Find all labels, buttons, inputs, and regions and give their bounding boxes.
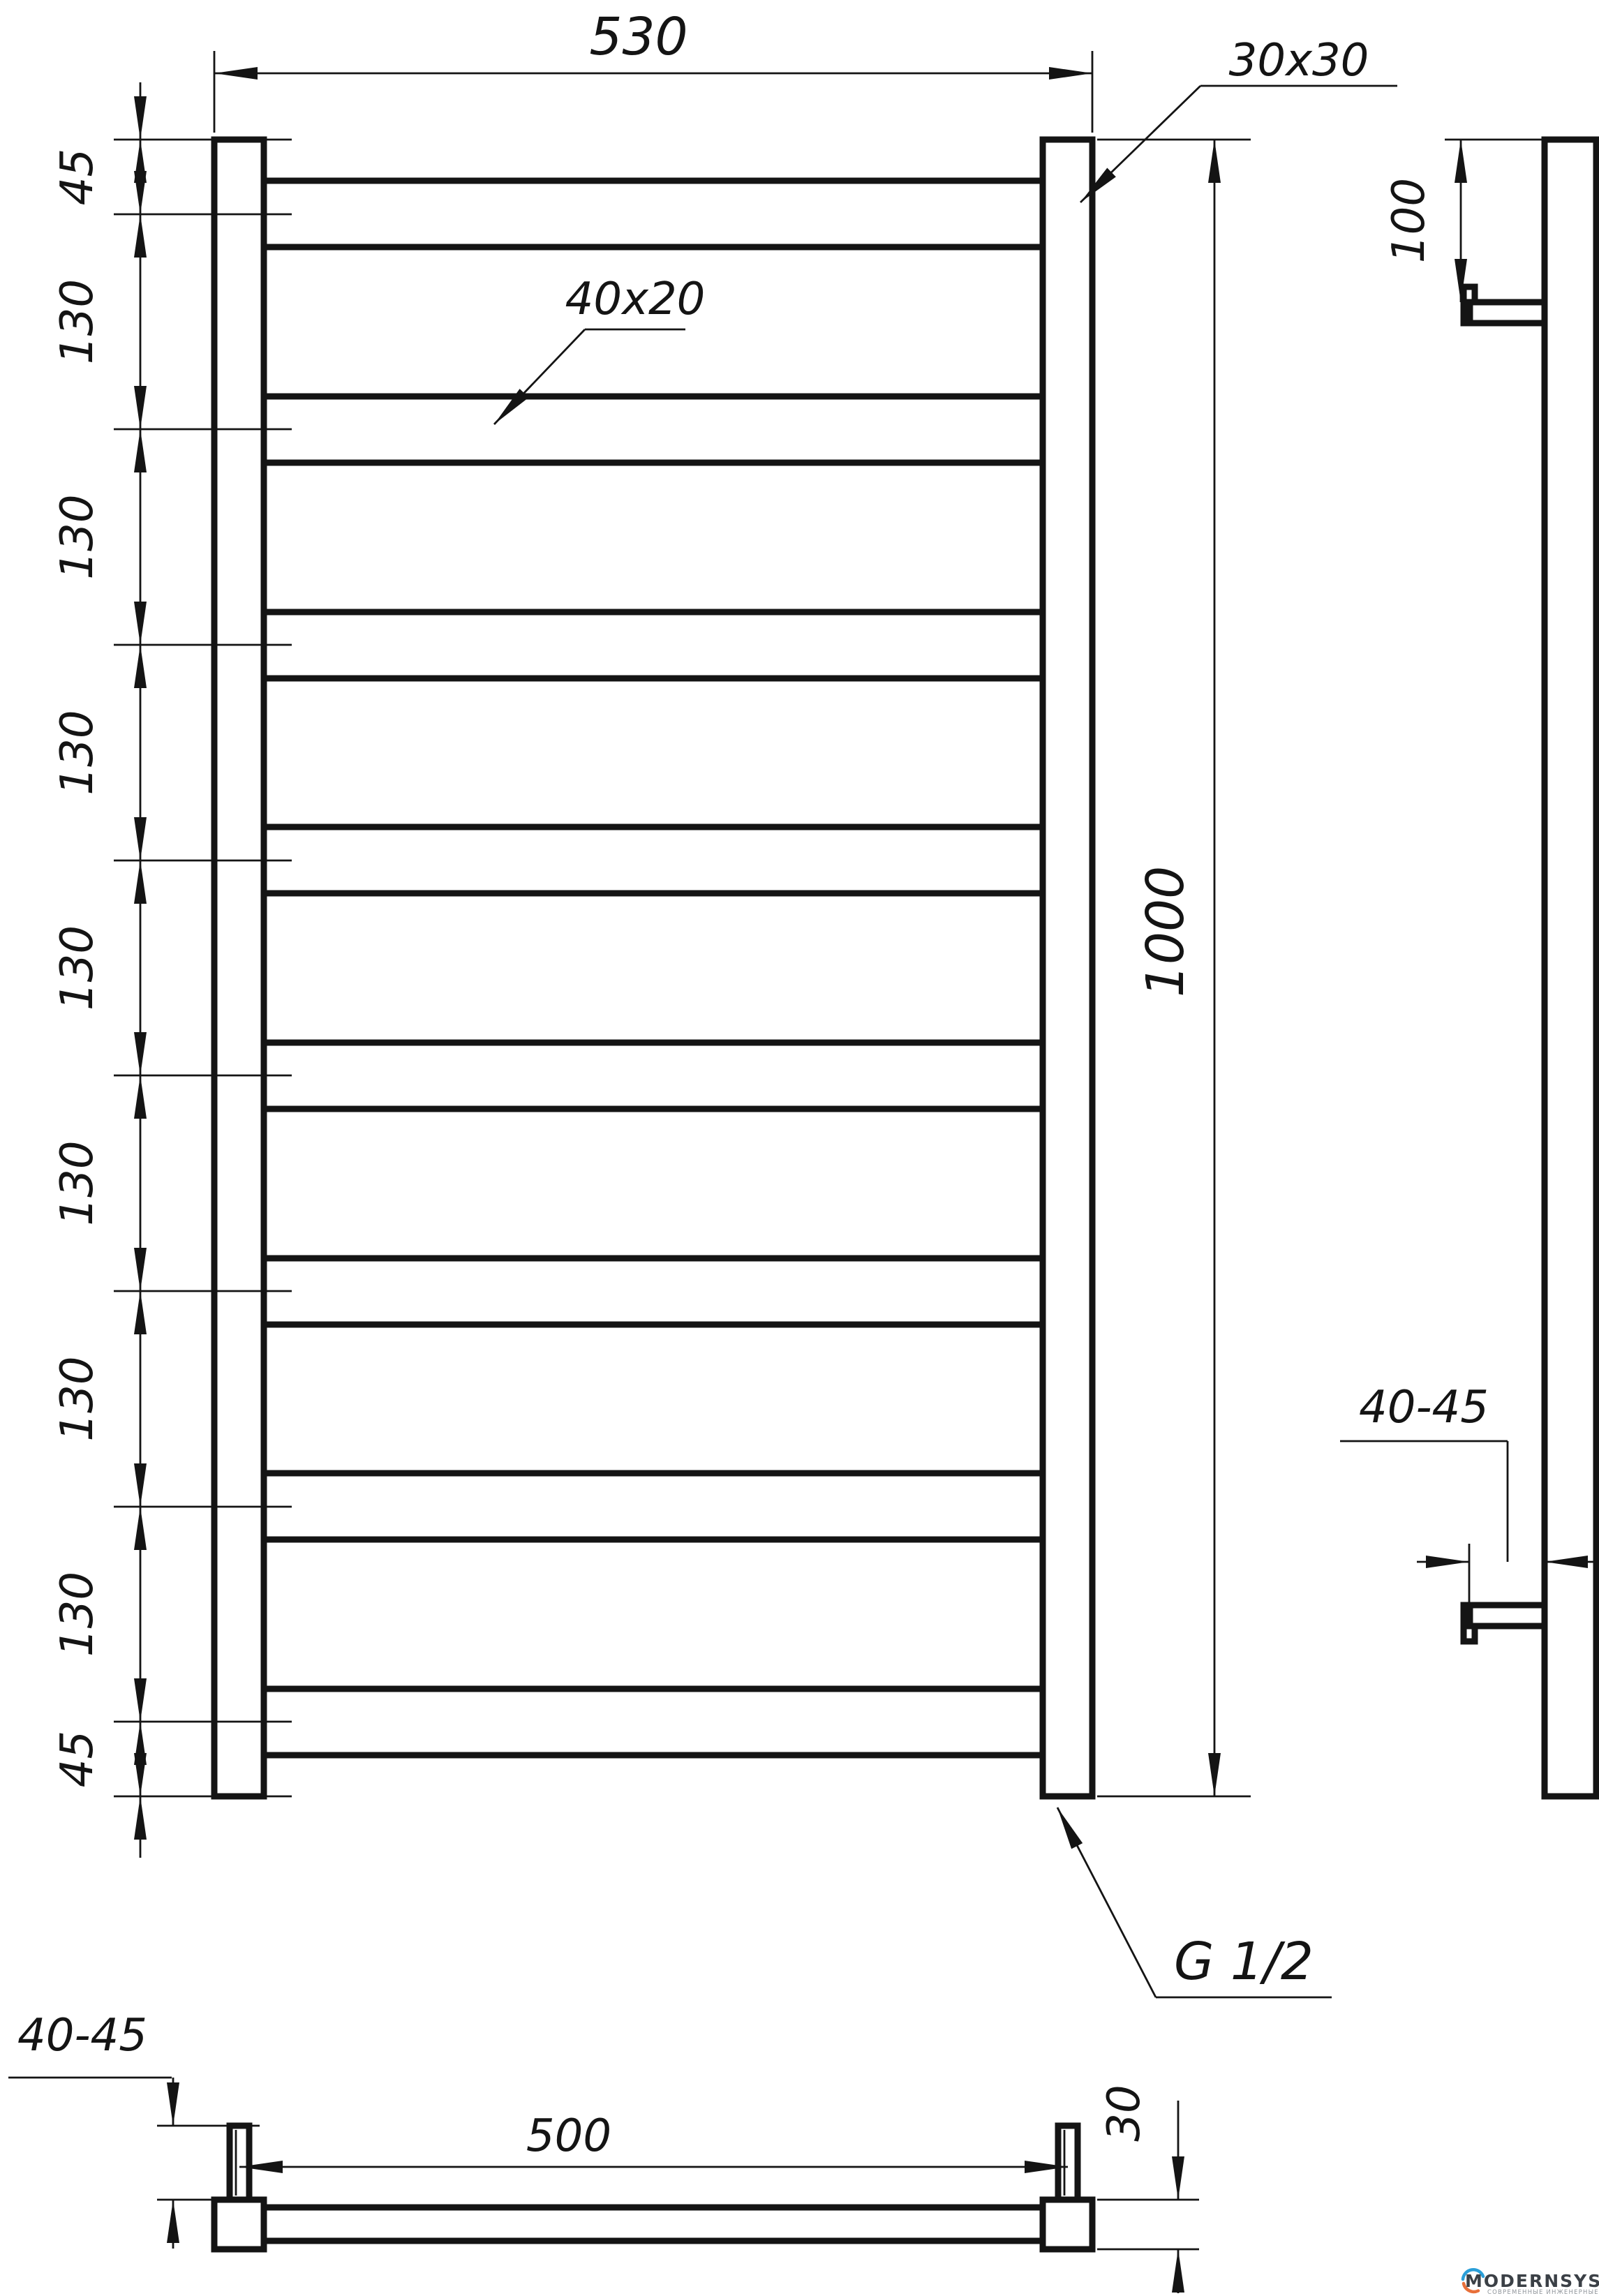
rung	[264, 1043, 1043, 1109]
spacing-label: 45	[52, 149, 103, 205]
spacing-label: 130	[52, 279, 103, 364]
arrow-icon	[214, 67, 258, 80]
arrow-icon	[134, 860, 147, 904]
arrow-icon	[134, 171, 147, 214]
arrow-icon	[1172, 2156, 1184, 2200]
spacing-label: 130	[52, 710, 103, 795]
arrow-icon	[134, 429, 147, 472]
dimension-500: 500	[239, 2110, 1068, 2173]
arrow-icon	[134, 1678, 147, 1722]
height-label: 1000	[1136, 866, 1196, 997]
arrow-icon	[134, 645, 147, 688]
front-view: 4513013013013013013013045 530 1000 30x30	[52, 7, 1397, 1997]
wall-clearance-label: 40-45	[17, 2010, 147, 2062]
post-profile-label: 30x30	[1229, 35, 1369, 87]
logo-name: MODERNSYS	[1465, 2271, 1599, 2291]
rung	[264, 1473, 1043, 1540]
bracket-spacing-label: 500	[526, 2110, 611, 2162]
arrow-icon	[134, 1248, 147, 1291]
wall-clearance-label: 40-45	[1359, 1382, 1489, 1433]
arrow-icon	[134, 1291, 147, 1334]
dimension-530: 530	[214, 7, 1092, 133]
dimension-1000: 1000	[1097, 140, 1251, 1796]
arrow-icon	[1049, 67, 1092, 80]
arrow-icon	[134, 602, 147, 645]
spacing-label: 45	[52, 1731, 103, 1787]
arrow-icon	[134, 214, 147, 258]
spacing-label: 130	[52, 925, 103, 1011]
side-view: 100 40-45	[1340, 140, 1596, 1796]
towel-rail-drawing: 4513013013013013013013045 530 1000 30x30	[0, 0, 1599, 2296]
right-post	[1043, 140, 1092, 1796]
arrow-icon	[1455, 140, 1467, 183]
arrow-icon	[1208, 140, 1221, 183]
rung	[264, 1689, 1043, 1755]
arrow-icon	[167, 2200, 179, 2243]
logo-tagline: СОВРЕМЕННЫЕ ИНЖЕНЕРНЫЕ СИСТЕМЫ	[1487, 2289, 1599, 2296]
arrow-icon	[1052, 1805, 1083, 1849]
left-post-bottom	[214, 2200, 264, 2249]
thread-label: G 1/2	[1174, 1932, 1314, 1992]
right-post-bottom	[1043, 2200, 1092, 2249]
brand-logo: MODERNSYS СОВРЕМЕННЫЕ ИНЖЕНЕРНЫЕ СИСТЕМЫ	[1455, 2261, 1599, 2296]
arrow-icon	[134, 1796, 147, 1840]
right-wall-plate	[1058, 2126, 1078, 2200]
leader-30x30: 30x30	[1076, 35, 1397, 207]
rung	[264, 827, 1043, 893]
rung	[264, 181, 1043, 247]
rung-profile-label: 40x20	[565, 274, 706, 325]
rung	[264, 396, 1043, 463]
arrow-icon	[134, 1507, 147, 1550]
spacing-label: 130	[52, 1572, 103, 1657]
arrow-icon	[134, 1032, 147, 1075]
arrow-icon	[134, 96, 147, 140]
arrow-icon	[134, 817, 147, 860]
leader-g12: G 1/2	[1052, 1805, 1332, 1997]
arrow-icon	[1426, 1556, 1469, 1568]
arrow-icon	[134, 1463, 147, 1507]
bracket-offset-label: 100	[1383, 178, 1435, 263]
spacing-label: 130	[52, 494, 103, 579]
dimension-30: 30	[1097, 2085, 1199, 2293]
tube-depth-label: 30	[1099, 2085, 1150, 2141]
rungs	[264, 181, 1043, 1755]
width-label: 530	[589, 7, 687, 67]
spacing-label: 130	[52, 1140, 103, 1225]
rung	[264, 1258, 1043, 1325]
arrow-icon	[134, 386, 147, 429]
spacing-label: 130	[52, 1356, 103, 1441]
bottom-view: 500 40-45 30	[8, 2010, 1199, 2293]
arrow-icon	[1172, 2249, 1184, 2293]
arrow-icon	[134, 1753, 147, 1796]
bottom-bracket-arm	[1470, 1605, 1545, 1626]
arrow-icon	[1208, 1753, 1221, 1796]
drawing-sheet: 4513013013013013013013045 530 1000 30x30	[0, 0, 1599, 2296]
arrow-icon	[134, 1075, 147, 1119]
post-side-profile	[1545, 140, 1596, 1796]
left-post	[214, 140, 264, 1796]
rung	[264, 612, 1043, 678]
left-wall-plate	[230, 2126, 249, 2200]
dimension-100: 100	[1383, 140, 1542, 302]
rung-bottom-profile	[264, 2207, 1043, 2241]
top-bracket-arm	[1470, 302, 1545, 323]
arrow-icon	[167, 2082, 179, 2126]
